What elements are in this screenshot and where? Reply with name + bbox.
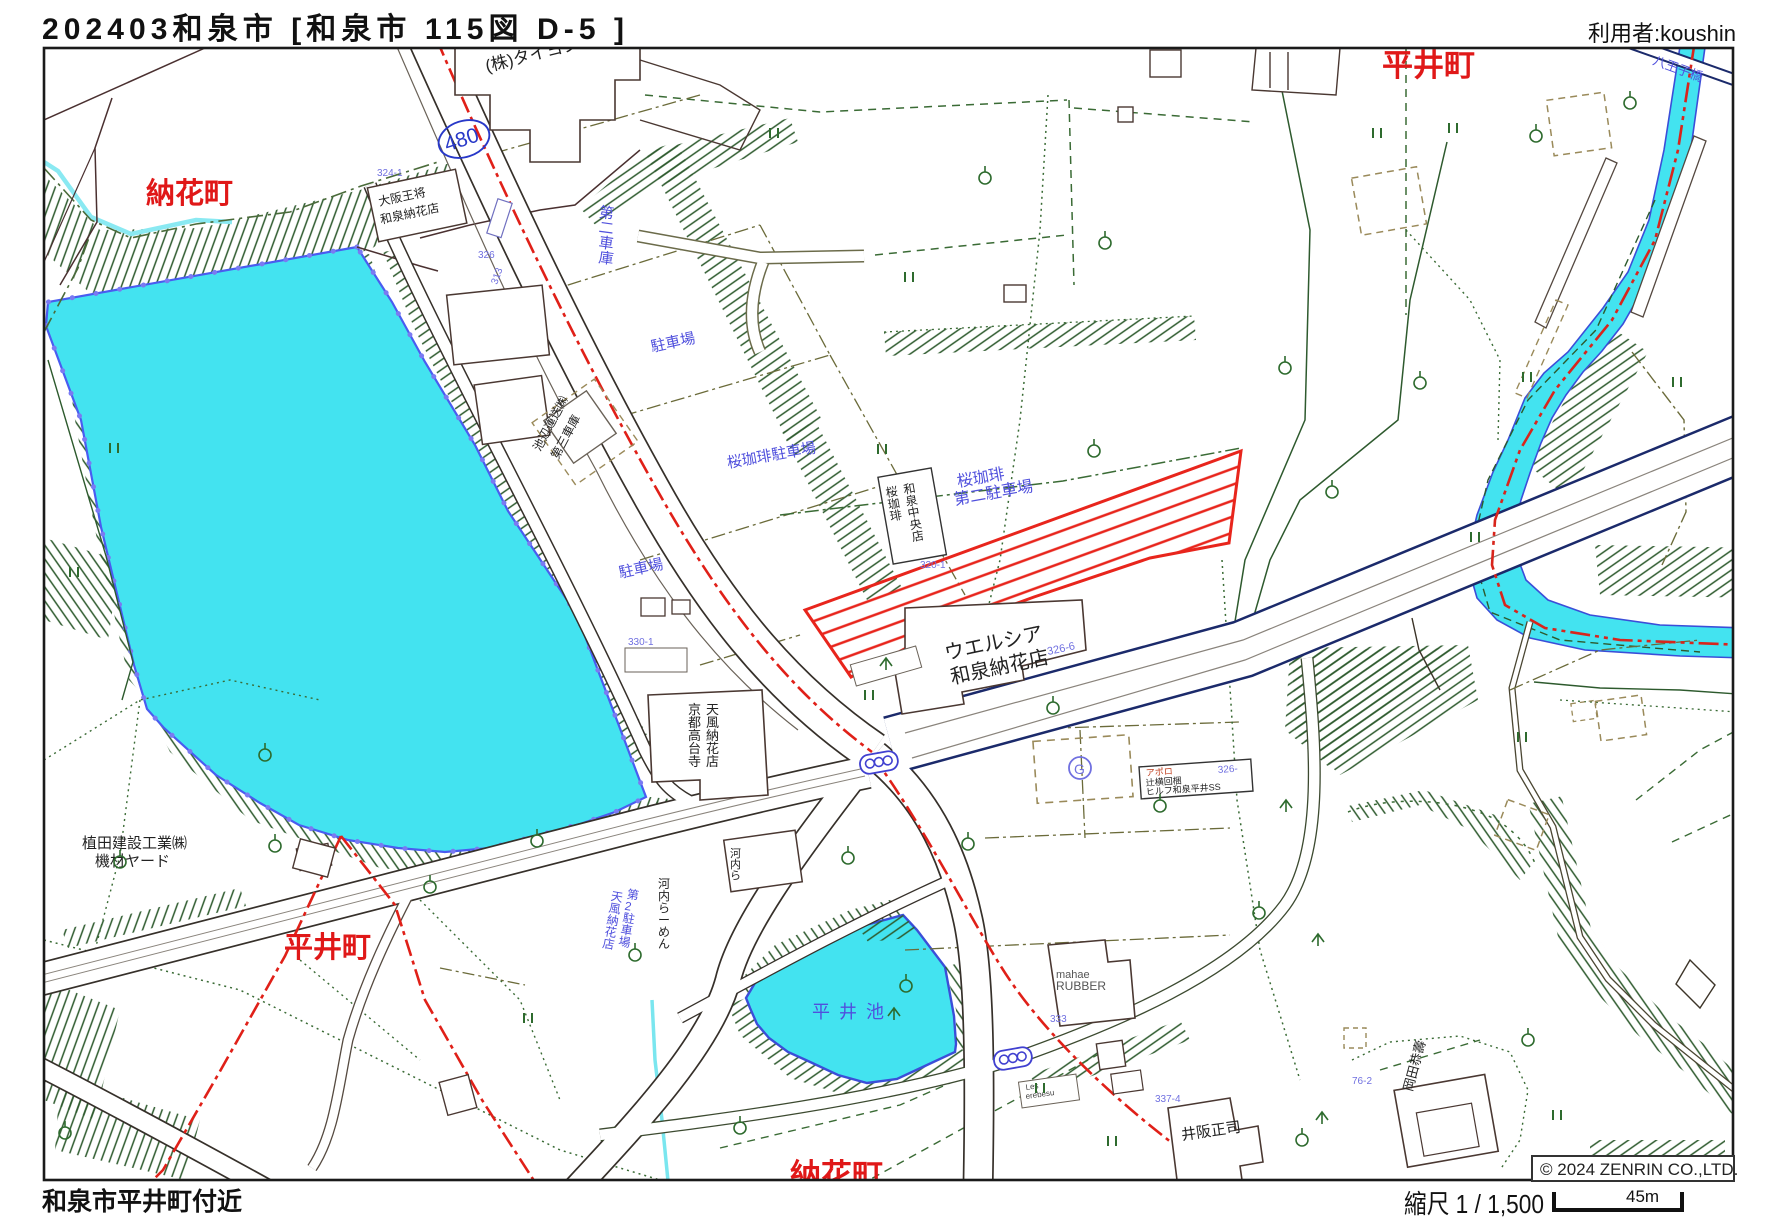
svg-text:平井町: 平井町	[1382, 48, 1475, 83]
svg-text:326-: 326-	[1217, 764, 1238, 776]
svg-text:平井池: 平井池	[812, 1002, 893, 1022]
svg-text:G: G	[1074, 761, 1085, 777]
svg-text:和泉市平井町付近: 和泉市平井町付近	[42, 1187, 242, 1216]
svg-text:京都高台寺: 京都高台寺	[688, 702, 701, 769]
svg-text:326: 326	[478, 250, 495, 261]
svg-text:45m: 45m	[1626, 1187, 1659, 1206]
svg-text:© 2024 ZENRIN CO.,LTD.: © 2024 ZENRIN CO.,LTD.	[1540, 1160, 1738, 1179]
svg-text:RUBBER: RUBBER	[1056, 979, 1106, 993]
svg-text:納花町: 納花町	[146, 176, 233, 210]
svg-text:縮尺 1 / 1,500: 縮尺 1 / 1,500	[1404, 1189, 1544, 1217]
svg-text:324-1: 324-1	[377, 168, 403, 179]
svg-text:320-1: 320-1	[920, 560, 946, 571]
svg-text:植田建設工業㈱: 植田建設工業㈱	[82, 835, 187, 852]
svg-text:337-4: 337-4	[1155, 1094, 1181, 1105]
svg-text:河内らーめん: 河内らーめん	[658, 877, 670, 951]
svg-text:機材ヤード: 機材ヤード	[95, 853, 170, 870]
svg-text:平井町: 平井町	[284, 931, 371, 964]
svg-text:202403和泉市 [和泉市 115図 D-5 ]: 202403和泉市 [和泉市 115図 D-5 ]	[42, 12, 624, 46]
svg-text:333: 333	[1050, 1014, 1067, 1025]
svg-text:天風納花店: 天風納花店	[706, 702, 719, 769]
svg-text:河内ら: 河内ら	[730, 847, 741, 882]
svg-text:利用者:koushin: 利用者:koushin	[1588, 21, 1736, 46]
svg-text:330-1: 330-1	[628, 637, 654, 648]
svg-text:76-2: 76-2	[1352, 1076, 1372, 1087]
